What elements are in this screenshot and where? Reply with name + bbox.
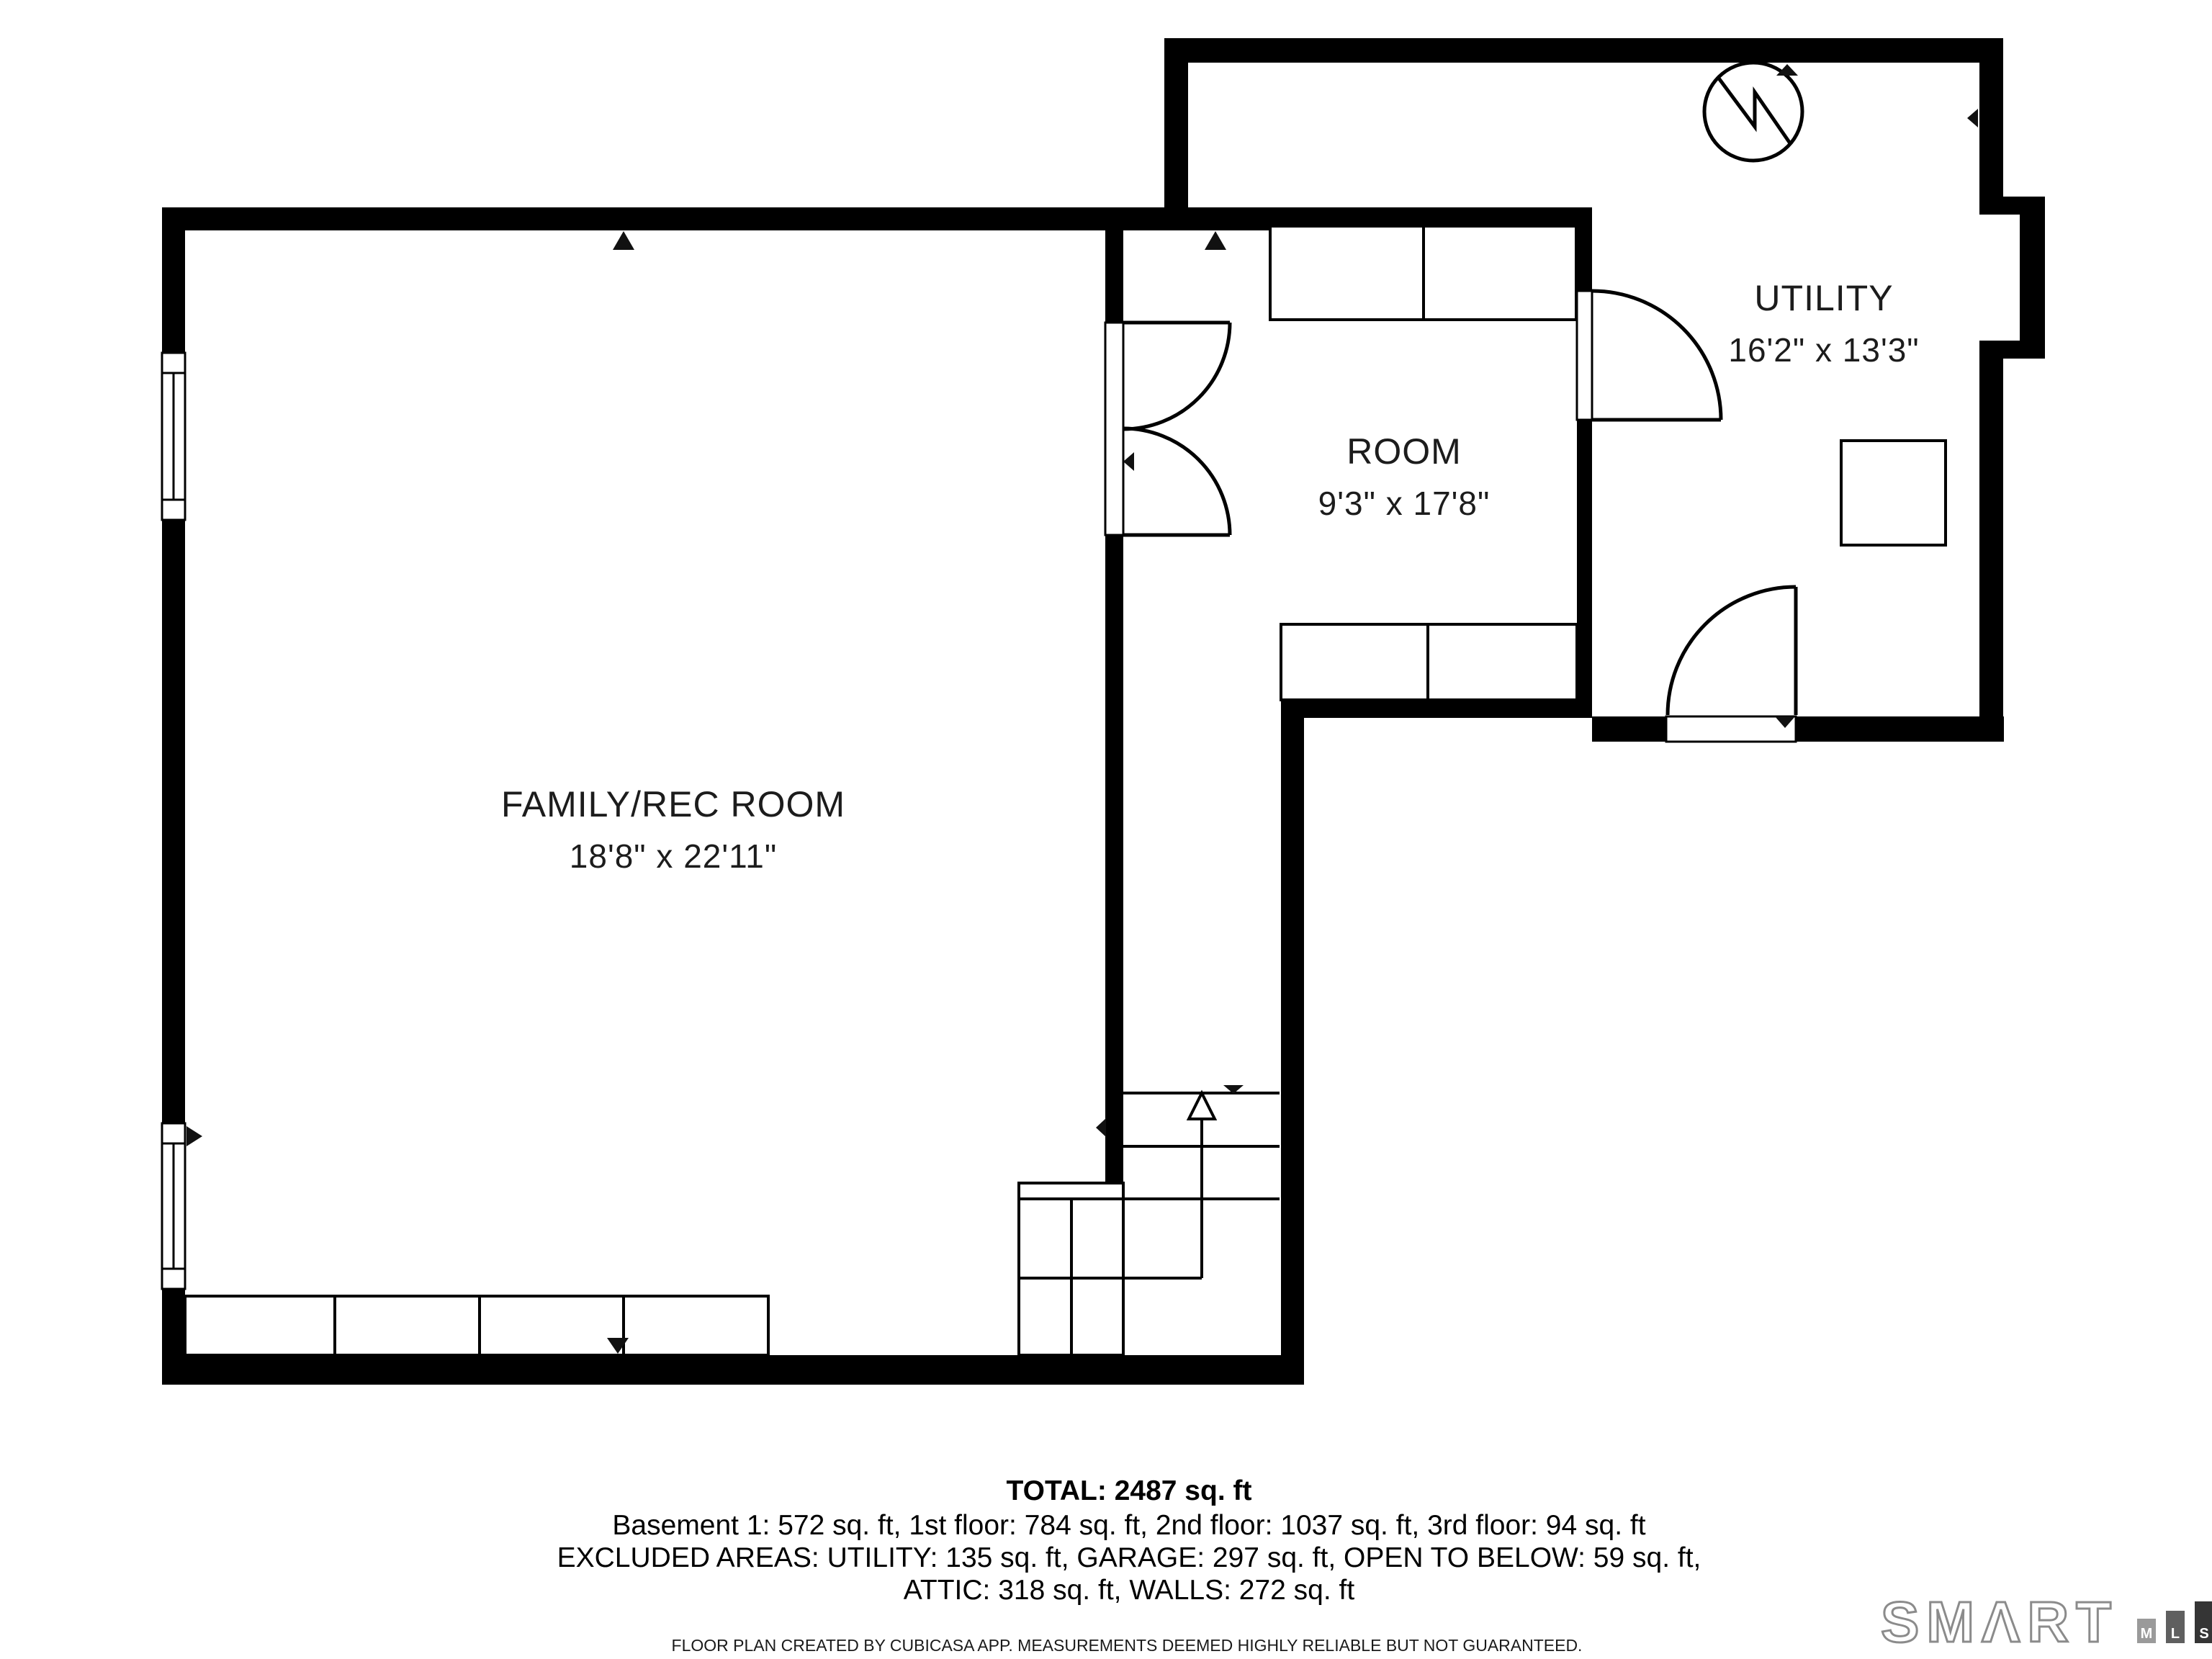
excluded-areas-text-1: EXCLUDED AREAS: UTILITY: 135 sq. ft, GAR…	[557, 1542, 1701, 1574]
area-summary: TOTAL: 2487 sq. ft Basement 1: 572 sq. f…	[557, 1475, 1701, 1606]
utility-equipment-box	[1841, 441, 1946, 545]
scan-direction-marker-icon	[1205, 231, 1226, 250]
disclaimer-text: FLOOR PLAN CREATED BY CUBICASA APP. MEAS…	[672, 1636, 1583, 1655]
wall-left-middle	[162, 520, 185, 1123]
wall-utility-top	[1164, 38, 2003, 63]
window-icon	[162, 353, 185, 520]
wall-room-right-lower	[1577, 420, 1592, 718]
room-dimensions: 16'2" x 13'3"	[1728, 331, 1919, 369]
wall-room-right-upper	[1577, 230, 1592, 291]
wall-bottom	[162, 1355, 1304, 1385]
wall-utility-bottom-left	[1592, 716, 1666, 742]
floorplan-drawing	[0, 0, 2212, 1659]
wall-left-upper	[162, 207, 185, 353]
logo-brand-text: SMΛRT	[1881, 1601, 2118, 1643]
excluded-areas-text-2: ATTIC: 318 sq. ft, WALLS: 272 sq. ft	[557, 1574, 1701, 1606]
room-name: ROOM	[1318, 431, 1491, 472]
logo-bar-l: L	[2166, 1611, 2185, 1643]
window-icon	[162, 1123, 185, 1289]
furniture	[185, 226, 1946, 1355]
room-label-room: ROOM 9'3" x 17'8"	[1318, 431, 1491, 523]
water-heater-circle-zigzag-icon	[1704, 63, 1802, 161]
scan-direction-markers	[186, 64, 1978, 1354]
door-swing-arc-icon	[1592, 291, 1721, 420]
scan-direction-marker-icon	[1096, 1118, 1106, 1137]
wall-utility-left	[1164, 38, 1188, 207]
staircase	[1019, 1093, 1280, 1355]
smartmls-logo: SMΛRT M L S	[1881, 1601, 2212, 1643]
wall-utility-bottom-right	[1796, 716, 2004, 742]
logo-bar-m: M	[2137, 1619, 2156, 1643]
floor-areas-text: Basement 1: 572 sq. ft, 1st floor: 784 s…	[557, 1509, 1701, 1542]
scan-direction-marker-icon	[1967, 109, 1978, 127]
wall-utility-right-upper	[1979, 38, 2003, 215]
room-dimensions: 18'8" x 22'11"	[501, 837, 845, 876]
room-dimensions: 9'3" x 17'8"	[1318, 484, 1491, 523]
total-area-text: TOTAL: 2487 sq. ft	[557, 1475, 1701, 1507]
logo-mls-bars: M L S	[2127, 1601, 2212, 1643]
wall-family-right-lower	[1105, 535, 1123, 1182]
door-swing-arc-icon	[1123, 323, 1230, 429]
wall-room-bottom	[1281, 700, 1592, 718]
room-wardrobe-top	[1270, 226, 1576, 320]
wall-utility-right-lower	[1979, 341, 2003, 742]
utility-exterior-door-opening	[1666, 716, 1796, 742]
double-door-opening	[1105, 323, 1123, 535]
logo-bar-s: S	[2195, 1601, 2212, 1643]
wall-stairwell-right	[1281, 718, 1304, 1385]
utility-room-door-opening	[1577, 291, 1592, 420]
room-wardrobe-bottom	[1281, 624, 1577, 700]
door-swing-arc-icon	[1668, 587, 1796, 715]
door-swing-arc-icon	[1123, 428, 1230, 535]
room-name: FAMILY/REC ROOM	[501, 783, 845, 825]
scan-direction-marker-icon	[1123, 452, 1134, 471]
room-name: UTILITY	[1728, 277, 1919, 319]
wall-bump-right	[2020, 197, 2045, 359]
scan-direction-marker-icon	[613, 231, 634, 250]
room-label-family: FAMILY/REC ROOM 18'8" x 22'11"	[501, 783, 845, 876]
wall-family-right-upper	[1105, 230, 1123, 323]
stairs-up-arrow-icon	[1189, 1093, 1215, 1277]
room-label-utility: UTILITY 16'2" x 13'3"	[1728, 277, 1919, 369]
scan-direction-marker-icon	[186, 1126, 202, 1146]
family-room-cabinet-row	[185, 1296, 768, 1355]
